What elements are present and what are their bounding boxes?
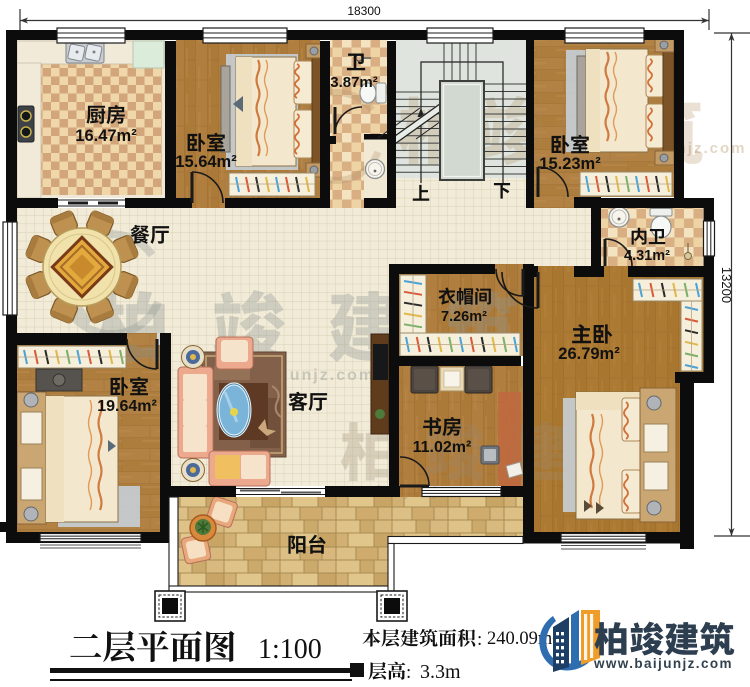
- svg-text:3.3m: 3.3m: [420, 661, 461, 683]
- svg-text:15.64m²: 15.64m²: [175, 153, 237, 171]
- svg-text:3.87m²: 3.87m²: [330, 74, 378, 91]
- svg-text:16.47m²: 16.47m²: [75, 127, 137, 145]
- svg-text:11.02m²: 11.02m²: [413, 439, 472, 456]
- svg-text:13200: 13200: [719, 267, 734, 303]
- svg-text::: :: [406, 662, 411, 683]
- svg-text:1:100: 1:100: [258, 634, 322, 665]
- svg-text:4.31m²: 4.31m²: [624, 248, 670, 264]
- svg-text:15.23m²: 15.23m²: [539, 155, 601, 173]
- svg-text:7.26m²: 7.26m²: [441, 309, 487, 325]
- svg-text:26.79m²: 26.79m²: [558, 345, 620, 363]
- svg-text::: :: [477, 629, 482, 650]
- svg-text:19.64m²: 19.64m²: [97, 398, 157, 415]
- svg-text:www.baijunjz.com: www.baijunjz.com: [593, 656, 733, 671]
- svg-text:18300: 18300: [347, 4, 381, 18]
